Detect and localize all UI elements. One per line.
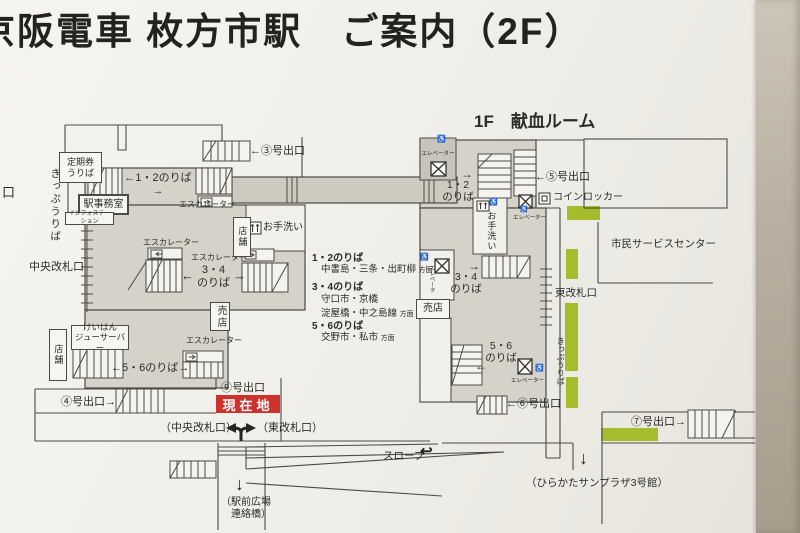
sunplaza-label: （ひらかたサンプラザ3号館）: [526, 477, 668, 489]
right-arrow-icon: →: [233, 269, 246, 284]
elevator-label: エレベーター: [420, 151, 456, 157]
cutoff-exit-label: 口: [2, 186, 15, 201]
stairs-exit5: [514, 150, 536, 196]
exit6-label: ←⑥号出口: [506, 398, 561, 411]
escalator-label: エスカレーター: [186, 336, 242, 345]
shop-center: 店舗: [233, 217, 251, 257]
civic-service-center-label: 市民サービスセンター: [611, 238, 716, 250]
route-56-head: 5・6のりば: [312, 321, 363, 333]
elevator-icon: [431, 162, 446, 176]
wheelchair-icon: ♿: [535, 365, 544, 373]
platform-56-west-label: ←5・6のりば→: [111, 362, 189, 375]
elevator-label: エレベーター: [511, 378, 544, 384]
ticket-office-east-label: きっぷうりば: [556, 337, 565, 393]
exit3-label: ←③号出口: [250, 145, 305, 158]
coin-locker-icon: [539, 193, 550, 204]
elevator-label: エレベーター: [513, 215, 546, 221]
exit5-label: ←⑤号出口: [535, 171, 590, 184]
stairs-east-top: [478, 154, 511, 198]
central-gate-paren-label: （中央改札口）: [160, 422, 237, 435]
exit7-label: ⑦号出口→: [631, 416, 686, 429]
wheelchair-icon: ♿: [437, 136, 446, 144]
stairs-exit6: [477, 396, 507, 414]
stairs-exit3: [203, 141, 250, 161]
left-arrow-icon: ←: [181, 269, 194, 284]
kiosk-east: 売店: [416, 299, 450, 319]
commuter-pass-office: 定期券 うりば: [59, 152, 102, 183]
down-arrow-icon: ↓: [579, 448, 588, 469]
toilet-west-label: お手洗い: [263, 222, 303, 234]
kiosk-west: 売店: [210, 302, 230, 331]
station-guide-photo: 京阪電車 枚方市駅 ご案内（2F） 口 定期券 うりば きっぷうりば 駅事務室 …: [0, 0, 800, 533]
wall-right-of-poster: [756, 0, 800, 533]
keihan-juicer-bar: けいはん ジューサーバー: [71, 325, 129, 350]
stairs-platform34-east: [482, 256, 530, 278]
central-gate-label: 中央改札口: [29, 261, 84, 274]
blood-donation-room-note: 1F 献血ルーム: [474, 112, 595, 132]
stairs-plaza-bridge: [170, 461, 216, 478]
east-gate-label: 東改札口: [555, 287, 597, 299]
escalator-label: エスカレーター: [143, 238, 199, 247]
stairs-exit4: [116, 389, 164, 413]
page-title: 京阪電車 枚方市駅 ご案内（2F）: [0, 11, 583, 54]
route-12-head: 1・2のりば: [312, 253, 363, 265]
escalator-label: エスカレーター: [179, 200, 235, 209]
wheelchair-icon: ♿: [520, 207, 527, 214]
wheelchair-icon: ♿: [420, 254, 429, 262]
platform-12-west-label: ←1・2のりば→: [120, 172, 196, 197]
route-34-head: 3・4のりば: [312, 282, 363, 294]
platform-12-east-label: 1・2 のりば: [441, 179, 475, 203]
connecting-corridor: [232, 177, 457, 203]
shop-left: 店舗: [49, 329, 67, 381]
ticket-office-west-label: きっぷうりば: [49, 168, 61, 300]
east-gate-paren-label: （東改札口）: [257, 422, 323, 435]
platform-34-west-label: ← 3・4 のりば →: [181, 264, 246, 289]
exit9-label: ⑨号出口: [221, 382, 265, 395]
route-34-dest: 守口市・京橋 淀屋橋・中之島線 方面: [321, 293, 414, 321]
elevator-label: エレベーター: [422, 265, 435, 295]
toilet-icon-east: [477, 201, 489, 211]
plaza-bridge-label: （駅前広場 連絡橋）: [218, 497, 274, 520]
current-location-badge: 現在地: [216, 395, 280, 413]
route-56-dest: 交野市・私市 方面: [321, 333, 395, 344]
platform-56-east-label: 5・6 のりば: [484, 340, 518, 364]
route-12-dest: 中書島・三条・出町柳 方面: [321, 265, 433, 276]
slope-label: スロープ: [383, 450, 424, 462]
slope-turn-arrow-icon: ↩: [420, 443, 433, 460]
toilet-east-label: お手洗い: [486, 211, 496, 253]
elevator-icon: [435, 259, 449, 273]
coin-locker-label: コインロッカー: [553, 192, 623, 204]
left-arrow-icon: ←: [475, 360, 487, 374]
stairs-exit7: [688, 410, 736, 438]
info-station: インフォステーション: [65, 212, 114, 225]
wheelchair-icon: ♿: [489, 199, 498, 207]
down-arrow-icon: ↓: [235, 474, 244, 495]
exit4-label: ④号出口→: [61, 396, 116, 409]
elevator-icon: [518, 359, 532, 374]
platform-34-east-label: 3・4 のりば: [449, 271, 483, 295]
